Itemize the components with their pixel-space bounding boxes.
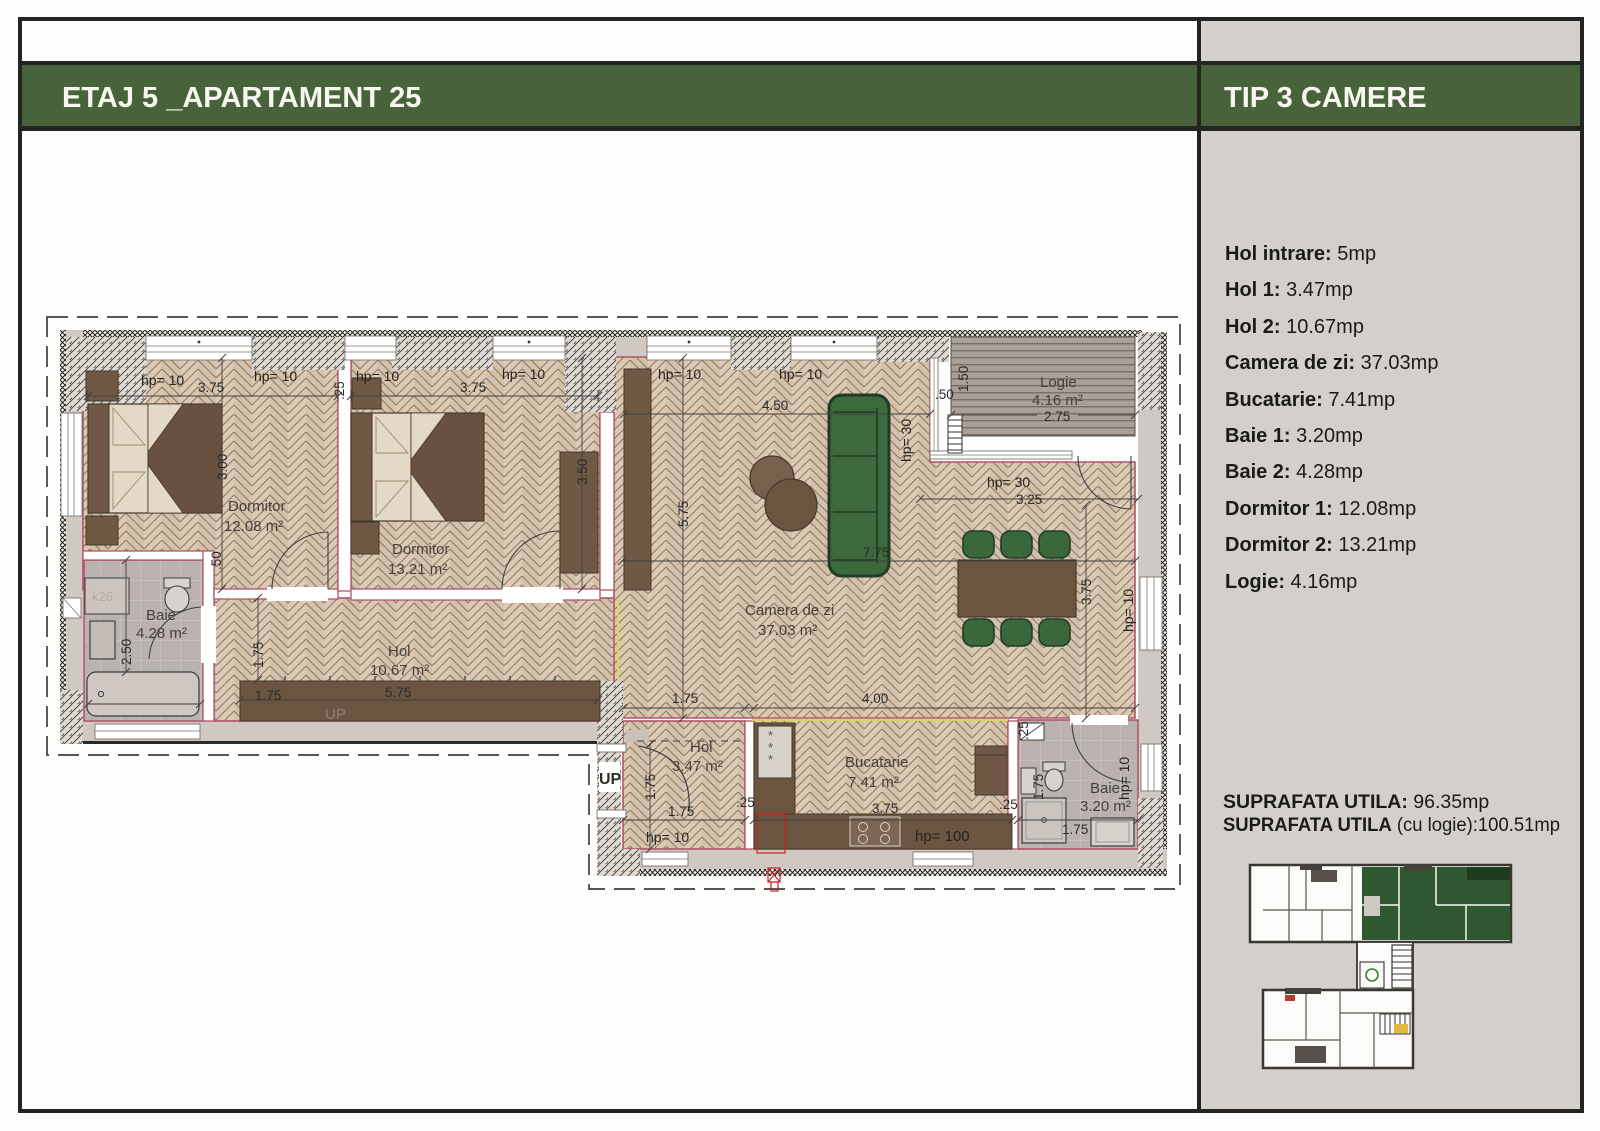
svg-text:hp= 10: hp= 10	[254, 368, 297, 384]
svg-text:1.75: 1.75	[672, 691, 698, 706]
svg-text:1.75: 1.75	[1031, 774, 1046, 800]
svg-text:1.50: 1.50	[956, 366, 971, 392]
svg-text:Camera de zi: Camera de zi	[745, 602, 834, 619]
svg-text:.50: .50	[209, 551, 224, 570]
svg-text:.25: .25	[736, 795, 755, 810]
svg-text:UP: UP	[599, 771, 622, 788]
svg-text:Hol: Hol	[388, 643, 411, 660]
svg-text:hp= 10: hp= 10	[658, 366, 701, 382]
svg-text:3.47 m²: 3.47 m²	[672, 758, 723, 775]
svg-text:1.75: 1.75	[255, 688, 281, 703]
svg-text:3.20 m²: 3.20 m²	[1080, 798, 1131, 815]
svg-text:hp= 10: hp= 10	[1120, 589, 1136, 632]
svg-text:7.41 m²: 7.41 m²	[848, 774, 899, 791]
svg-text:1.75: 1.75	[251, 642, 266, 668]
svg-text:Hol: Hol	[690, 739, 713, 756]
svg-text:Logie: 4.16mp: Logie: 4.16mp	[1225, 571, 1357, 593]
svg-text:4.50: 4.50	[762, 398, 788, 413]
svg-text:Baie: Baie	[146, 607, 176, 624]
svg-text:4.16 m²: 4.16 m²	[1032, 392, 1083, 409]
svg-text:Bucatarie: 7.41mp: Bucatarie: 7.41mp	[1225, 389, 1395, 411]
svg-text:Bucatarie: Bucatarie	[845, 754, 908, 771]
svg-text:TIP 3 CAMERE: TIP 3 CAMERE	[1224, 82, 1427, 114]
svg-text:2.75: 2.75	[1044, 409, 1070, 424]
svg-text:SUPRAFATA UTILA: 96.35mp: SUPRAFATA UTILA: 96.35mp	[1223, 791, 1489, 813]
svg-text:Camera de zi: 37.03mp: Camera de zi: 37.03mp	[1225, 352, 1438, 374]
svg-text:3.25: 3.25	[1016, 492, 1042, 507]
svg-text:hp= 30: hp= 30	[898, 419, 914, 462]
svg-text:hp= 10: hp= 10	[779, 366, 822, 382]
svg-text:.50: .50	[935, 387, 954, 402]
svg-text:2.50: 2.50	[119, 639, 134, 665]
svg-text:4.28 m²: 4.28 m²	[136, 625, 187, 642]
svg-text:SUPRAFATA UTILA (cu logie):10: SUPRAFATA UTILA (cu logie):100.51mp	[1223, 814, 1560, 836]
svg-text:hp= 10: hp= 10	[141, 372, 184, 388]
svg-text:7.75: 7.75	[863, 545, 889, 560]
svg-text:.25: .25	[1016, 721, 1031, 740]
svg-text:1.75: 1.75	[643, 774, 658, 800]
svg-text:Hol intrare: 5mp: Hol intrare: 5mp	[1225, 243, 1376, 265]
svg-text:3.75: 3.75	[198, 380, 224, 395]
svg-text:3.50: 3.50	[575, 459, 590, 485]
svg-text:Dormitor: Dormitor	[228, 498, 286, 515]
svg-text:Hol 1: 3.47mp: Hol 1: 3.47mp	[1225, 279, 1353, 301]
svg-text:ETAJ 5 _APARTAMENT 25: ETAJ 5 _APARTAMENT 25	[62, 82, 421, 114]
svg-text:Dormitor 2: 13.21mp: Dormitor 2: 13.21mp	[1225, 534, 1416, 556]
svg-text:1.75: 1.75	[1062, 822, 1088, 837]
svg-text:Logie: Logie	[1040, 374, 1077, 391]
svg-text:*: *	[768, 752, 773, 767]
svg-text:Baie: Baie	[1090, 780, 1120, 797]
svg-text:12.08 m²: 12.08 m²	[224, 518, 283, 535]
svg-text:1.75: 1.75	[668, 804, 694, 819]
svg-text:hp= 30: hp= 30	[987, 474, 1030, 490]
svg-text:Hol 2: 10.67mp: Hol 2: 10.67mp	[1225, 316, 1364, 338]
svg-text:10.67 m²: 10.67 m²	[370, 662, 429, 679]
svg-text:Dormitor: Dormitor	[392, 541, 450, 558]
svg-text:k26: k26	[92, 589, 113, 604]
svg-text:5.75: 5.75	[385, 685, 411, 700]
svg-text:.25: .25	[999, 797, 1018, 812]
svg-text:hp= 10: hp= 10	[502, 366, 545, 382]
svg-text:.25: .25	[332, 381, 347, 400]
svg-text:3.75: 3.75	[1079, 579, 1094, 605]
svg-text:hp= 100: hp= 100	[915, 828, 970, 845]
svg-text:13.21 m²: 13.21 m²	[388, 561, 447, 578]
svg-text:hp= 10: hp= 10	[356, 368, 399, 384]
svg-text:UP: UP	[325, 706, 346, 723]
svg-text:5.75: 5.75	[676, 501, 691, 527]
svg-text:Baie 2: 4.28mp: Baie 2: 4.28mp	[1225, 461, 1363, 483]
svg-text:37.03 m²: 37.03 m²	[758, 622, 817, 639]
svg-text:3.75: 3.75	[872, 801, 898, 816]
svg-text:Baie 1: 3.20mp: Baie 1: 3.20mp	[1225, 425, 1363, 447]
svg-text:4.00: 4.00	[862, 691, 888, 706]
svg-text:hp= 10: hp= 10	[646, 829, 689, 845]
svg-text:Dormitor 1: 12.08mp: Dormitor 1: 12.08mp	[1225, 498, 1416, 520]
svg-text:3.00: 3.00	[215, 454, 230, 480]
svg-text:3.75: 3.75	[460, 380, 486, 395]
